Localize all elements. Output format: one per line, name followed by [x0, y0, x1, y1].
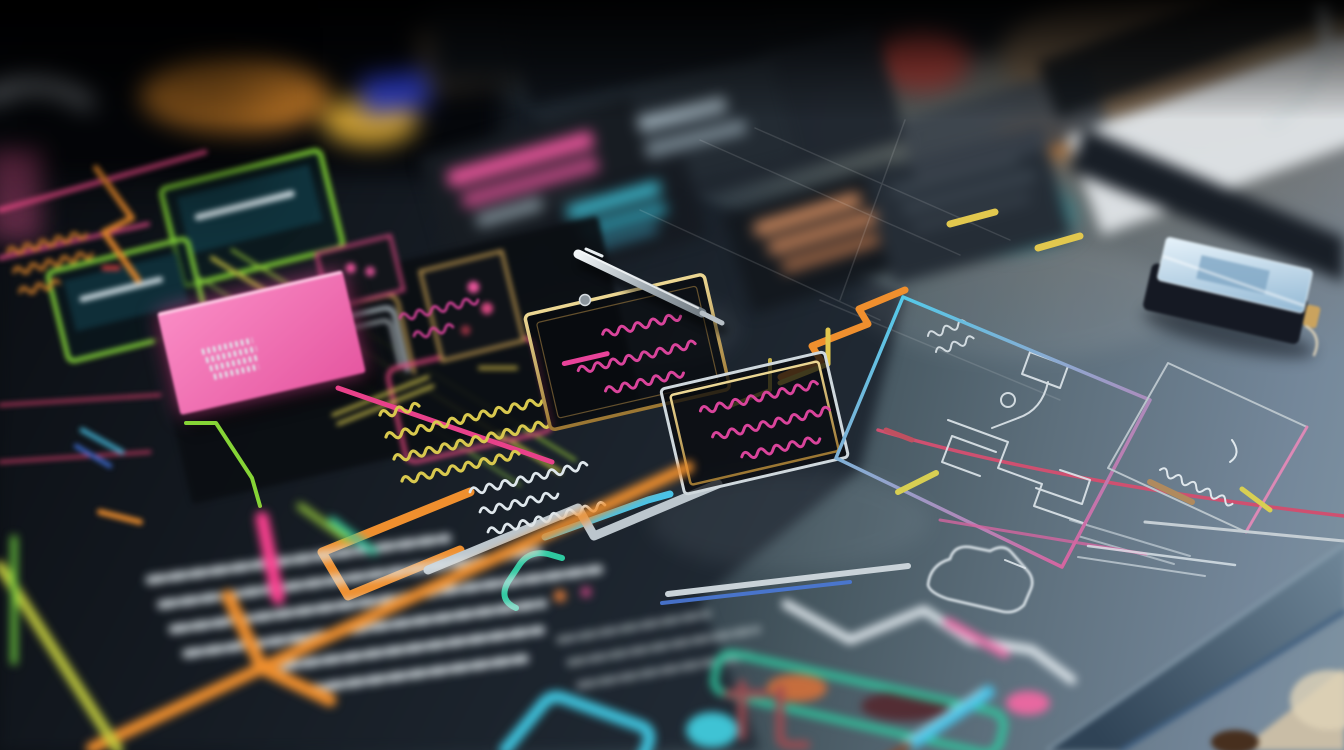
- pink-highlighter-segment: [948, 622, 1005, 654]
- pink-insert: [1006, 691, 1050, 715]
- chalk-dot: [1001, 393, 1015, 407]
- silver-long-trace: [1145, 522, 1344, 541]
- chalk-leader: [992, 382, 1048, 428]
- screw: [580, 295, 591, 306]
- corner-vignette: [0, 0, 260, 200]
- pink-dot-small: [581, 587, 591, 597]
- yellow-dash-3: [898, 473, 936, 492]
- scene: [0, 0, 1344, 750]
- white-zigzag: [786, 604, 1072, 680]
- brown-object: [1211, 730, 1259, 750]
- photo-canvas: [0, 0, 1344, 750]
- desk-edge: [1048, 545, 1344, 750]
- side-panel-pink-edge: [1246, 427, 1307, 532]
- teal-outline: [714, 654, 1004, 750]
- teal-blob: [686, 712, 738, 748]
- cyan-pen-tip: [884, 746, 908, 750]
- chalk-hook: [1230, 440, 1237, 462]
- chalk-maze-2: [942, 436, 996, 476]
- orange-dot: [554, 590, 566, 602]
- chalk-car-outline: [928, 547, 1032, 612]
- teal-gadget: [714, 654, 1050, 750]
